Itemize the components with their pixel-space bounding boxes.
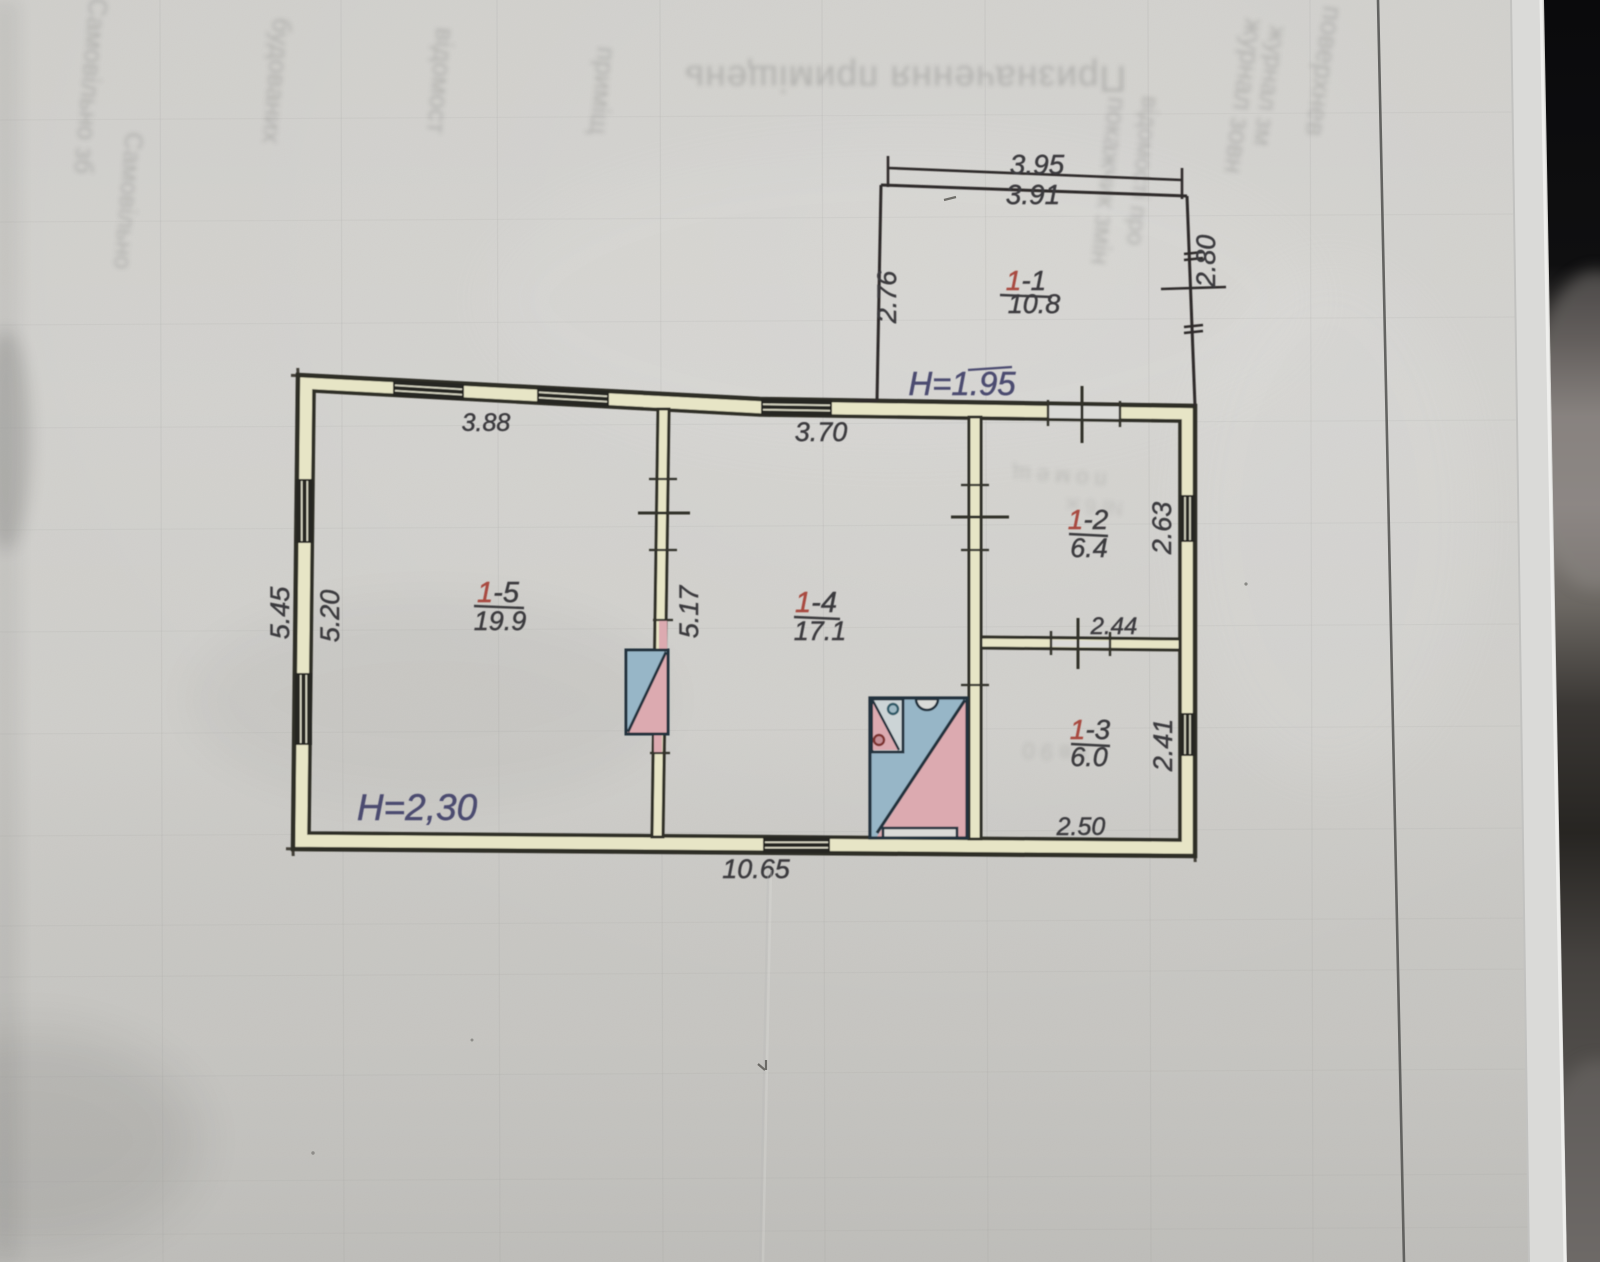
svg-text:17.1: 17.1: [794, 616, 847, 646]
svg-text:1-5: 1-5: [477, 577, 520, 609]
svg-text:2.50: 2.50: [1056, 813, 1106, 841]
svg-text:H=2,30: H=2,30: [357, 787, 478, 828]
svg-text:10.65: 10.65: [722, 854, 791, 884]
svg-text:1-4: 1-4: [795, 587, 837, 619]
svg-text:3.88: 3.88: [462, 409, 511, 437]
svg-text:1-2: 1-2: [1068, 504, 1109, 535]
svg-text:3.70: 3.70: [795, 417, 848, 447]
svg-text:2.44: 2.44: [1090, 613, 1138, 640]
svg-text:19.9: 19.9: [474, 606, 527, 636]
svg-text:1-3: 1-3: [1070, 714, 1111, 745]
svg-text:3.91: 3.91: [1006, 179, 1061, 210]
svg-text:5.45: 5.45: [265, 586, 295, 640]
svg-text:2.63: 2.63: [1147, 502, 1177, 556]
svg-text:3.95: 3.95: [1010, 149, 1065, 180]
svg-text:H=1.95: H=1.95: [908, 365, 1016, 402]
svg-text:2.76: 2.76: [872, 270, 902, 325]
svg-text:10.8: 10.8: [1008, 289, 1061, 319]
svg-text:2.41: 2.41: [1148, 719, 1178, 773]
svg-text:5.20: 5.20: [315, 590, 345, 643]
svg-text:2.80: 2.80: [1191, 235, 1221, 289]
svg-text:Призначення приміщень: Призначення приміщень: [684, 58, 1126, 99]
svg-text:6.4: 6.4: [1070, 533, 1108, 563]
svg-text:6.0: 6.0: [1070, 742, 1108, 772]
svg-text:5.17: 5.17: [674, 585, 704, 639]
